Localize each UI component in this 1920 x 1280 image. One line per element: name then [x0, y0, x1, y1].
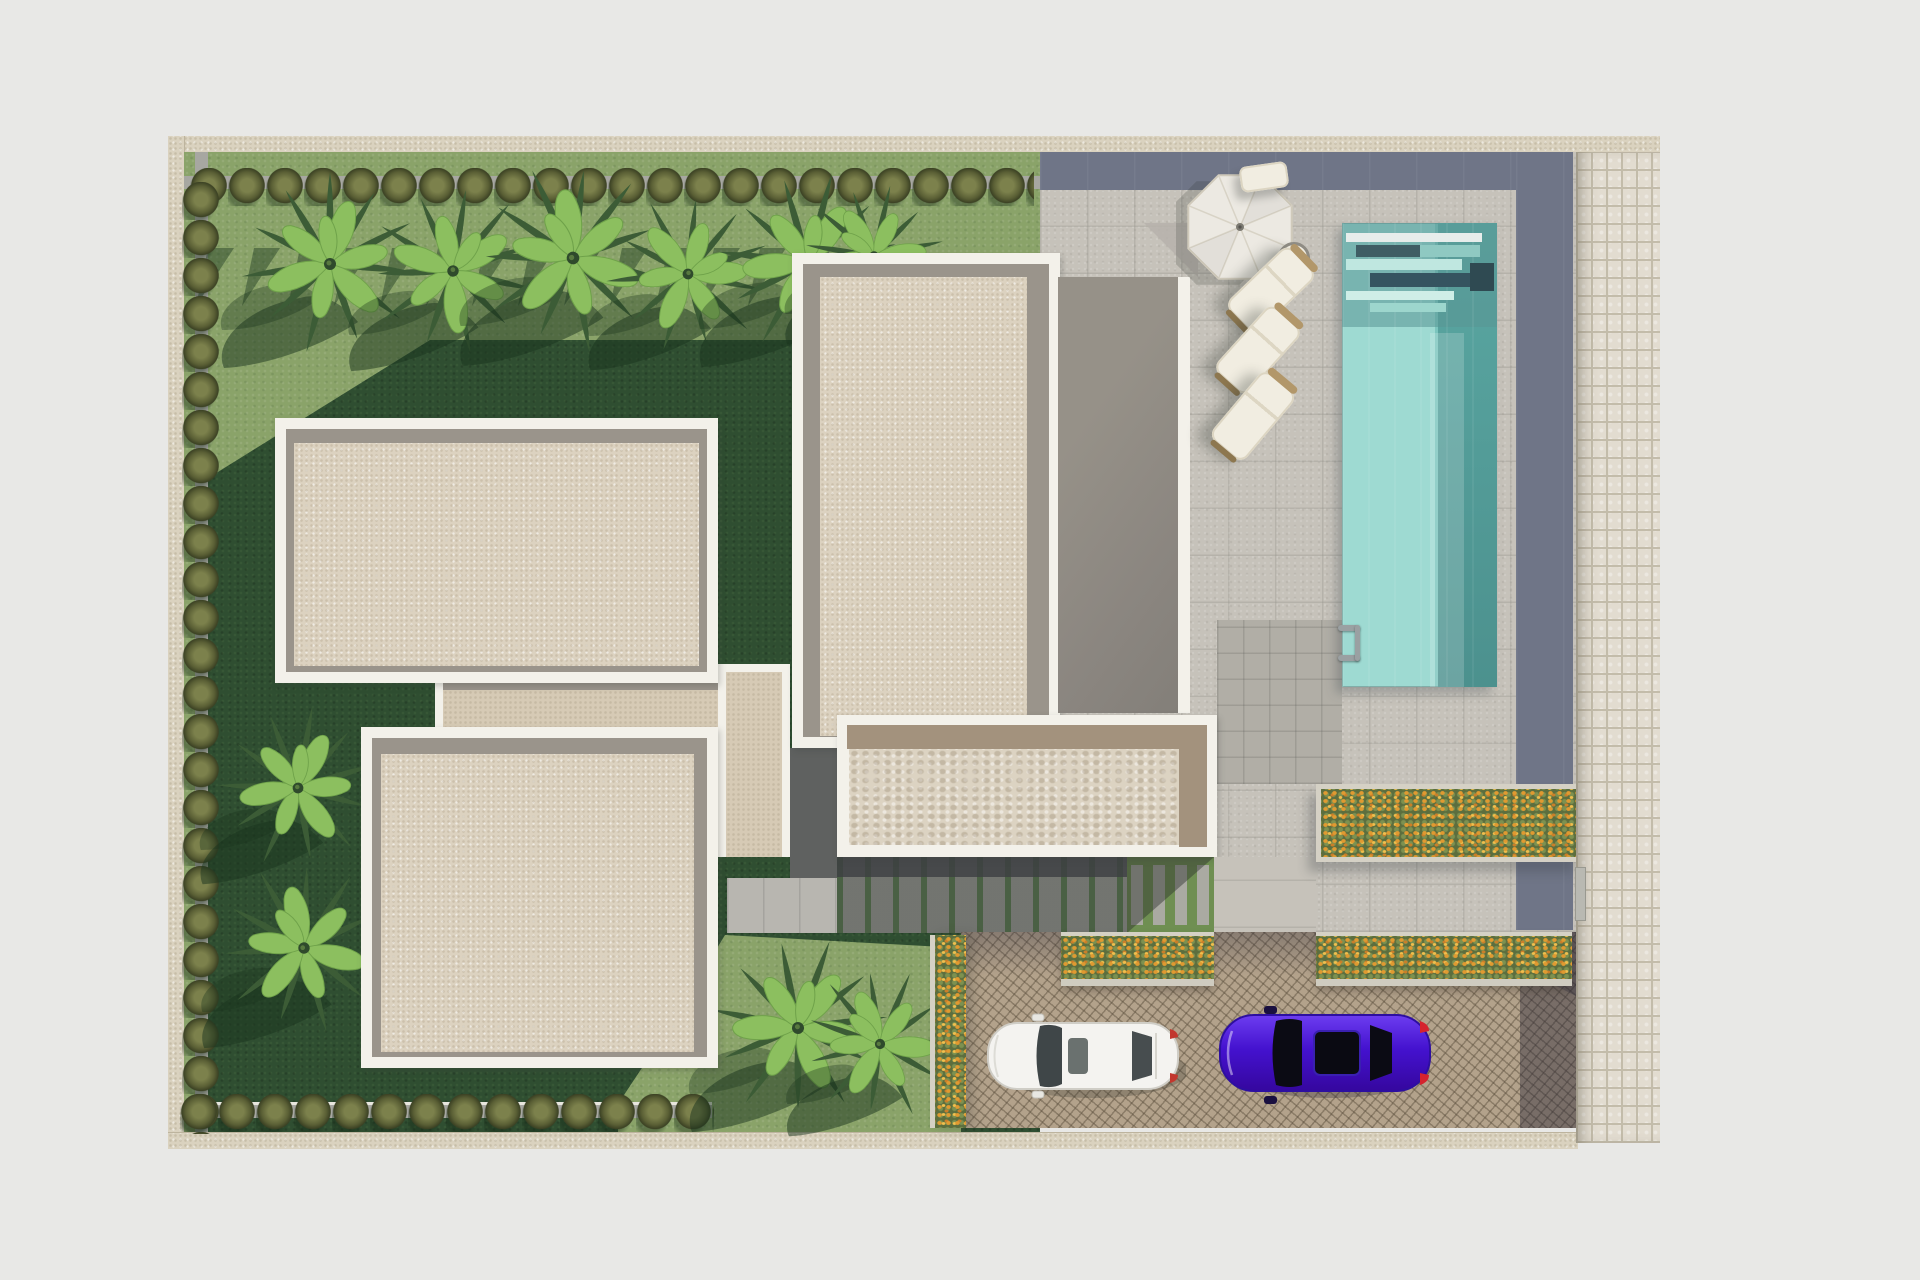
pool-step — [1346, 259, 1462, 270]
stepping-stone-lawn-patch — [1127, 857, 1214, 933]
covered-terrace-roof — [837, 715, 1217, 857]
villa-roof-main-tall — [792, 253, 1060, 748]
terrace-large-tile-zone — [1217, 620, 1342, 784]
pool-step — [1470, 263, 1494, 291]
white-car — [982, 1011, 1186, 1103]
flower-planter-driveway-right — [1316, 932, 1572, 986]
flower-planter-pool — [1316, 784, 1582, 862]
pool-step — [1420, 245, 1480, 257]
pool-step — [1370, 273, 1474, 287]
flower-planter-driveway-edge — [930, 935, 966, 1128]
garage-roof — [1058, 277, 1178, 713]
shaded-passage — [790, 748, 837, 878]
gate-post — [1575, 867, 1586, 921]
pool-step — [1346, 291, 1454, 300]
connector-roof-center — [718, 664, 790, 857]
pool-step — [1346, 233, 1482, 242]
pool-ladder-icon — [1355, 625, 1360, 661]
page-background: { "scene": { "type": "architectural-site… — [0, 0, 1920, 1280]
flower-planter-driveway-left — [1061, 932, 1214, 986]
concrete-pad — [727, 878, 837, 933]
villa-roof-south-west — [361, 727, 718, 1068]
paver-path-right-edge — [1576, 152, 1660, 1143]
purple-car — [1214, 1005, 1436, 1105]
terrace-dark-border-top — [1040, 152, 1573, 190]
swimming-pool — [1342, 223, 1497, 687]
site-plan-rendering — [168, 136, 1660, 1148]
villa-roof-north-west — [275, 418, 718, 683]
garage-roof-rim — [1178, 277, 1190, 713]
pool-step — [1370, 303, 1446, 312]
pool-step — [1356, 245, 1420, 257]
